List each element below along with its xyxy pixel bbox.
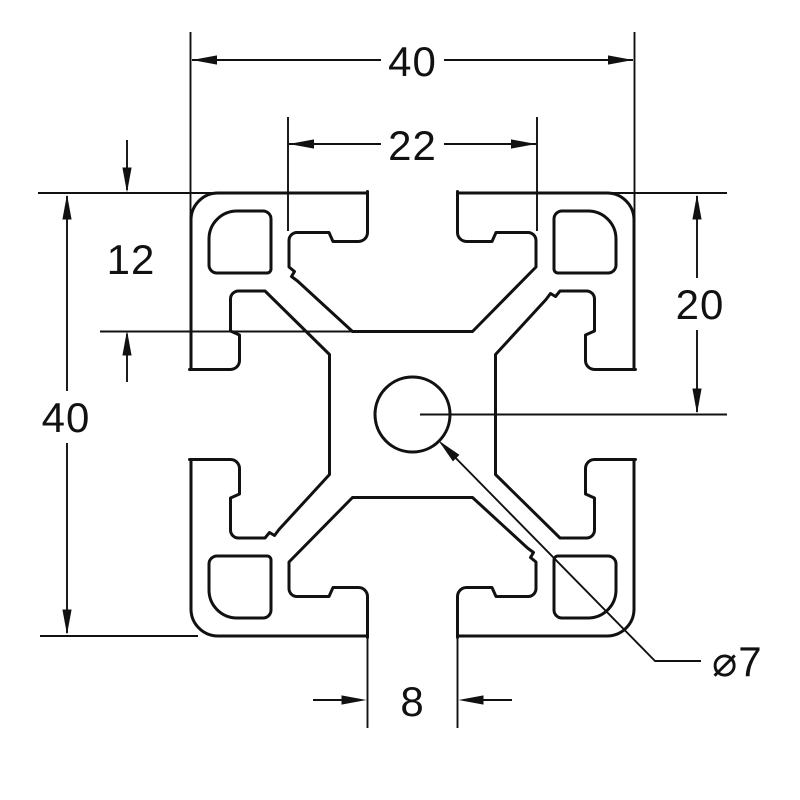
technical-drawing: 40 22 12 40	[0, 0, 800, 800]
arrowhead-down	[692, 389, 701, 414]
dim-label-face-to-center: 20	[676, 281, 725, 328]
arrowhead-up	[122, 331, 131, 356]
dim-label-overall-width: 40	[388, 38, 437, 85]
arrowhead-left	[192, 55, 217, 64]
dim-label-slot-inner-width: 22	[388, 122, 437, 169]
dim-label-center-hole: ⌀7	[712, 638, 763, 685]
arrowhead-down	[122, 168, 131, 193]
dim-label-slot-opening: 8	[400, 678, 424, 725]
arrowhead-up	[692, 195, 701, 220]
dim-slot-opening: 8	[313, 634, 512, 728]
arrowhead-right	[511, 139, 536, 148]
arrowhead-left	[459, 695, 484, 704]
arrowhead-right	[342, 695, 367, 704]
arrowhead-down	[62, 610, 71, 635]
arrowhead-right	[608, 55, 633, 64]
dim-label-slot-depth: 12	[107, 236, 156, 283]
dim-label-overall-height: 40	[42, 394, 91, 441]
arrowhead-left	[289, 139, 314, 148]
arrowhead-up	[62, 195, 71, 220]
